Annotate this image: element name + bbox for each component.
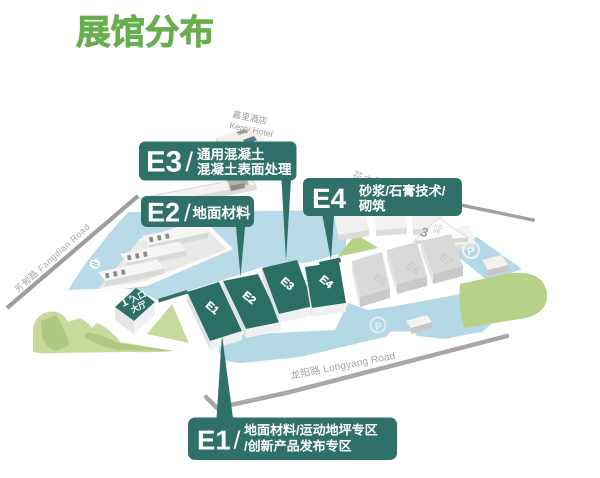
svg-text:E3: E3 [146,146,182,179]
svg-text:地面材料: 地面材料 [193,205,251,222]
svg-text:E2: E2 [147,198,180,228]
svg-text:/: / [184,200,191,227]
svg-text:地面材料/运动地坪专区: 地面材料/运动地坪专区 [244,423,378,438]
svg-text:E1: E1 [197,425,231,456]
svg-text:砂浆/石膏技术/: 砂浆/石膏技术/ [359,184,446,199]
svg-text:砌筑: 砌筑 [358,199,386,214]
svg-text:/创新产品发布专区: /创新产品发布专区 [244,439,352,454]
svg-text:/: / [234,427,241,455]
svg-text:通用混凝土: 通用混凝土 [197,147,265,162]
svg-text:混凝土表面处理: 混凝土表面处理 [197,162,292,177]
svg-text:E4: E4 [312,183,347,214]
svg-text:展馆分布: 展馆分布 [76,14,214,52]
svg-text:/: / [186,147,194,177]
